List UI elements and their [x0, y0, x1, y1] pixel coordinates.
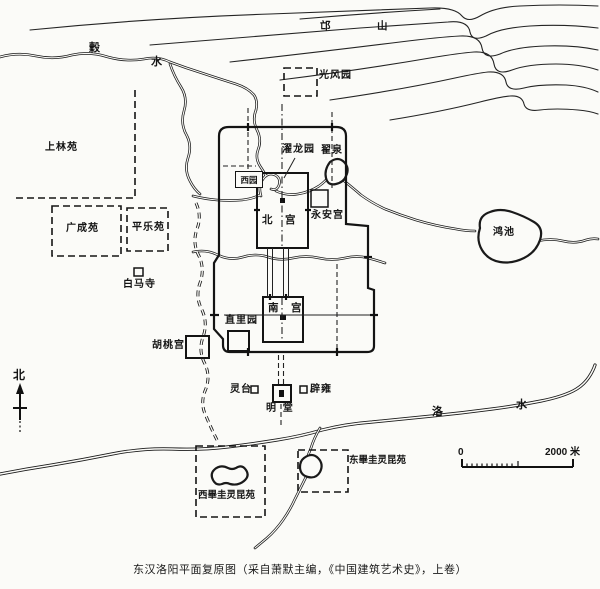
baimasi-square	[134, 268, 143, 276]
label-scale-max: 2000 米	[545, 448, 580, 458]
label-gu-river-char2: 水	[151, 57, 163, 68]
label-guangchengyuan: 广成苑	[66, 224, 99, 234]
map-linework	[0, 0, 600, 589]
label-mingtang: 明 堂	[266, 404, 295, 414]
guangfengyuan-box	[284, 68, 317, 96]
zhiliyuan-outline	[228, 331, 249, 351]
label-lingtai: 灵台	[230, 385, 252, 395]
label-pingleyuan: 平乐苑	[132, 223, 165, 233]
label-dong-biguilingkunyuan: 东畢圭灵昆苑	[349, 456, 406, 466]
label-shanglinyuan: 上林苑	[45, 143, 78, 153]
caption: 东汉洛阳平面复原图（采自萧默主编，《中国建筑艺术史》，上卷）	[0, 561, 600, 577]
map-page: 邙 山 穀 水 光风园 上林苑 广成苑 平乐苑 白马寺 西园 濯龙园 翟泉 永安…	[0, 0, 600, 589]
label-gu-river-char1: 穀	[89, 43, 101, 54]
label-mangshan: 邙 山	[320, 21, 406, 32]
label-xi-biguilingkunyuan: 西畢圭灵昆苑	[198, 491, 255, 501]
label-luo-river-char1: 洛	[432, 407, 444, 418]
label-zhuolongyuan: 濯龙园	[282, 145, 315, 155]
label-north: 北	[13, 369, 26, 381]
biyong-square	[300, 386, 307, 393]
label-luo-river-char2: 水	[516, 400, 528, 411]
label-hutaogong: 胡桃宫	[152, 341, 185, 351]
label-zhiliyuan: 直里园	[225, 316, 258, 326]
mingtang-inner-mark	[279, 390, 284, 397]
scale-bar	[462, 459, 573, 467]
label-nangong: 南 宫	[268, 303, 303, 314]
label-zhaiquan: 翟泉	[321, 146, 343, 156]
label-xiyuan: 西园	[235, 171, 263, 188]
label-scale-zero: 0	[458, 448, 465, 458]
lingtai-square	[251, 386, 258, 393]
hutao-palace-outline	[186, 336, 209, 358]
label-yonganggong: 永安宫	[311, 211, 344, 221]
south-palace-gate-mark	[280, 315, 286, 320]
north-arrow	[13, 383, 27, 432]
label-biyong: 辟雍	[310, 385, 332, 395]
west-lingkun-pond	[212, 466, 248, 484]
contour-lines	[30, 5, 598, 120]
label-hongchi: 鸿池	[493, 228, 515, 238]
zhaiquan-pond	[326, 159, 348, 184]
label-beigong: 北 宫	[262, 215, 297, 226]
zhuolongyuan-leader-line	[284, 158, 295, 178]
label-baimasi: 白马寺	[123, 280, 156, 290]
label-guangfengyuan: 光风园	[319, 71, 352, 81]
yongan-palace-outline	[311, 190, 328, 207]
east-lingkun-pond	[300, 455, 322, 477]
